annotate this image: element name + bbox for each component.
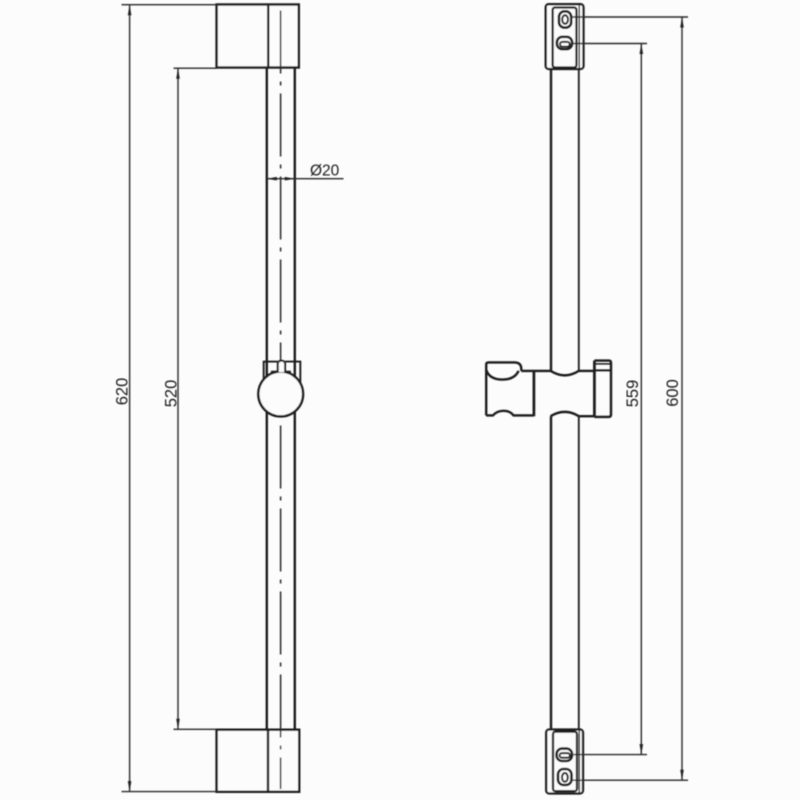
svg-text:520: 520	[162, 380, 180, 408]
svg-text:600: 600	[664, 379, 682, 407]
svg-text:620: 620	[114, 378, 132, 406]
svg-text:Ø20: Ø20	[310, 163, 340, 180]
svg-text:559: 559	[624, 380, 642, 408]
